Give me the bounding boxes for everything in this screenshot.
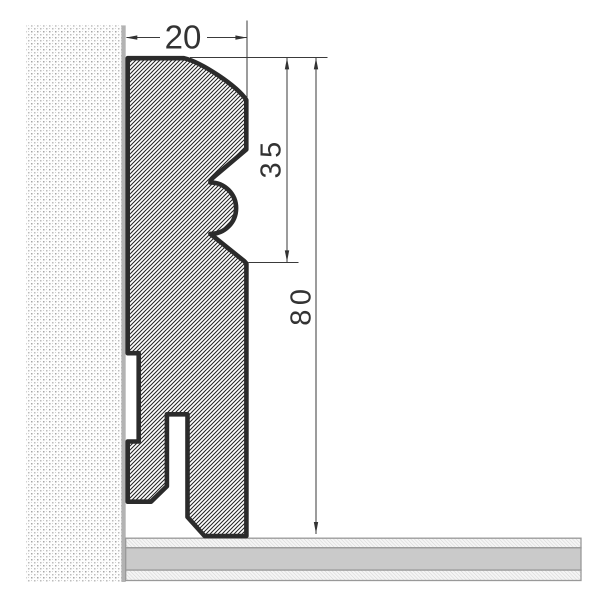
svg-text:20: 20	[165, 19, 202, 56]
svg-text:80: 80	[286, 284, 318, 325]
svg-text:35: 35	[256, 137, 288, 178]
